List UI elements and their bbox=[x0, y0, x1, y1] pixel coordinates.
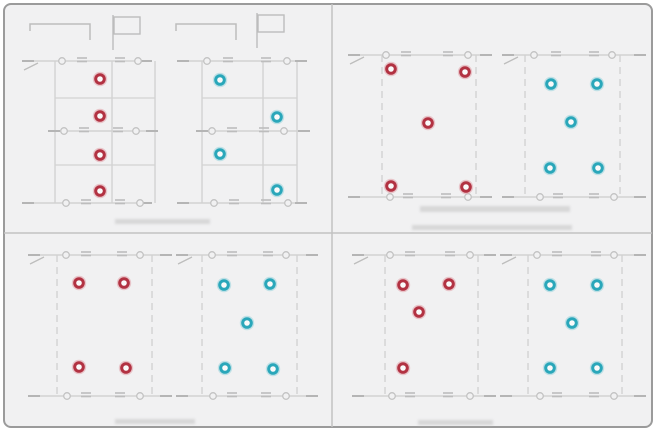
marker-ring bbox=[567, 118, 576, 127]
marker-ring bbox=[415, 308, 424, 317]
connector-circle-icon bbox=[63, 252, 70, 259]
marker-ring bbox=[266, 280, 275, 289]
cyan-marker bbox=[219, 362, 231, 374]
marker-ring bbox=[269, 365, 278, 374]
connector-circle-icon bbox=[210, 393, 217, 400]
connector-circle-icon bbox=[283, 393, 290, 400]
connector-circle-icon bbox=[611, 393, 618, 400]
marker-ring bbox=[120, 279, 129, 288]
connector-circle-icon bbox=[611, 252, 618, 259]
caption-smudge bbox=[115, 219, 210, 224]
connector-circle-icon bbox=[387, 252, 394, 259]
connector-circle-icon bbox=[59, 58, 66, 65]
marker-ring bbox=[593, 80, 602, 89]
figure-root bbox=[0, 0, 671, 433]
red-marker bbox=[73, 361, 85, 373]
red-marker bbox=[397, 279, 409, 291]
red-marker bbox=[385, 180, 397, 192]
marker-ring bbox=[568, 319, 577, 328]
marker-ring bbox=[399, 364, 408, 373]
connector-circle-icon bbox=[387, 194, 394, 201]
red-marker bbox=[422, 117, 434, 129]
red-marker bbox=[94, 110, 106, 122]
caption-smudge bbox=[420, 206, 570, 212]
marker-ring bbox=[445, 280, 454, 289]
marker-ring bbox=[75, 363, 84, 372]
marker-ring bbox=[461, 68, 470, 77]
marker-ring bbox=[387, 182, 396, 191]
connector-circle-icon bbox=[209, 252, 216, 259]
marker-ring bbox=[96, 187, 105, 196]
connector-circle-icon bbox=[133, 128, 140, 135]
connector-circle-icon bbox=[465, 52, 472, 59]
cyan-marker bbox=[267, 363, 279, 375]
marker-ring bbox=[594, 164, 603, 173]
red-marker bbox=[94, 185, 106, 197]
connector-circle-icon bbox=[467, 252, 474, 259]
red-marker bbox=[385, 63, 397, 75]
cyan-marker bbox=[544, 279, 556, 291]
marker-ring bbox=[216, 150, 225, 159]
red-marker bbox=[397, 362, 409, 374]
cyan-marker bbox=[565, 116, 577, 128]
marker-ring bbox=[462, 183, 471, 192]
caption-smudge bbox=[412, 225, 572, 230]
cyan-marker bbox=[566, 317, 578, 329]
cyan-marker bbox=[218, 279, 230, 291]
connector-circle-icon bbox=[389, 393, 396, 400]
connector-circle-icon bbox=[63, 200, 70, 207]
caption-smudge bbox=[418, 420, 493, 425]
marker-ring bbox=[122, 364, 131, 373]
marker-ring bbox=[273, 113, 282, 122]
figure-canvas bbox=[0, 0, 671, 433]
marker-ring bbox=[216, 76, 225, 85]
caption-smudge bbox=[115, 419, 195, 424]
connector-circle-icon bbox=[534, 252, 541, 259]
red-marker bbox=[94, 73, 106, 85]
red-marker bbox=[443, 278, 455, 290]
red-marker bbox=[120, 362, 132, 374]
marker-ring bbox=[546, 364, 555, 373]
connector-circle-icon bbox=[283, 252, 290, 259]
connector-circle-icon bbox=[64, 393, 71, 400]
cyan-marker bbox=[591, 78, 603, 90]
connector-circle-icon bbox=[209, 128, 216, 135]
connector-circle-icon bbox=[611, 194, 618, 201]
connector-circle-icon bbox=[285, 200, 292, 207]
marker-ring bbox=[221, 364, 230, 373]
cyan-marker bbox=[591, 279, 603, 291]
cyan-marker bbox=[591, 362, 603, 374]
red-marker bbox=[94, 149, 106, 161]
connector-circle-icon bbox=[284, 58, 291, 65]
red-marker bbox=[118, 277, 130, 289]
cyan-marker bbox=[544, 162, 556, 174]
red-marker bbox=[73, 277, 85, 289]
cyan-marker bbox=[271, 111, 283, 123]
connector-circle-icon bbox=[135, 58, 142, 65]
cyan-marker bbox=[544, 362, 556, 374]
connector-circle-icon bbox=[211, 200, 218, 207]
connector-circle-icon bbox=[137, 393, 144, 400]
cyan-marker bbox=[214, 148, 226, 160]
cyan-marker bbox=[264, 278, 276, 290]
connector-circle-icon bbox=[537, 194, 544, 201]
cyan-marker bbox=[271, 184, 283, 196]
marker-ring bbox=[593, 364, 602, 373]
marker-ring bbox=[75, 279, 84, 288]
marker-ring bbox=[243, 319, 252, 328]
red-marker bbox=[460, 181, 472, 193]
connector-circle-icon bbox=[383, 52, 390, 59]
marker-ring bbox=[96, 112, 105, 121]
red-marker bbox=[413, 306, 425, 318]
connector-circle-icon bbox=[137, 200, 144, 207]
marker-ring bbox=[96, 151, 105, 160]
cyan-marker bbox=[592, 162, 604, 174]
connector-circle-icon bbox=[61, 128, 68, 135]
marker-ring bbox=[387, 65, 396, 74]
connector-circle-icon bbox=[204, 58, 211, 65]
connector-circle-icon bbox=[531, 52, 538, 59]
marker-ring bbox=[546, 281, 555, 290]
marker-ring bbox=[424, 119, 433, 128]
marker-ring bbox=[593, 281, 602, 290]
connector-circle-icon bbox=[281, 128, 288, 135]
cyan-marker bbox=[214, 74, 226, 86]
cyan-marker bbox=[545, 78, 557, 90]
marker-ring bbox=[273, 186, 282, 195]
connector-circle-icon bbox=[465, 194, 472, 201]
connector-circle-icon bbox=[467, 393, 474, 400]
connector-circle-icon bbox=[137, 252, 144, 259]
marker-ring bbox=[399, 281, 408, 290]
marker-ring bbox=[546, 164, 555, 173]
red-marker bbox=[459, 66, 471, 78]
marker-ring bbox=[547, 80, 556, 89]
connector-circle-icon bbox=[537, 393, 544, 400]
marker-ring bbox=[220, 281, 229, 290]
marker-ring bbox=[96, 75, 105, 84]
cyan-marker bbox=[241, 317, 253, 329]
connector-circle-icon bbox=[609, 52, 616, 59]
